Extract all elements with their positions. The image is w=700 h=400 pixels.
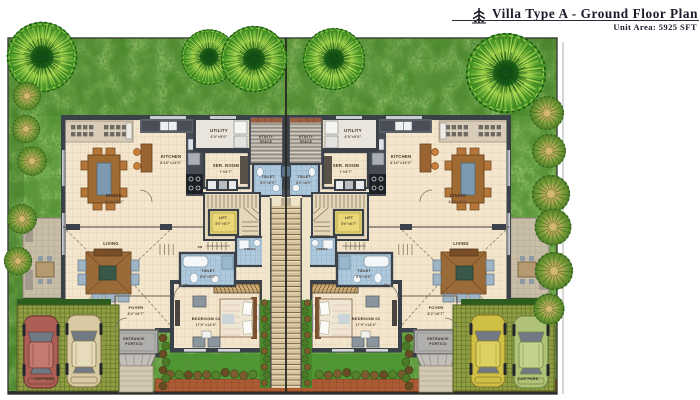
svg-text:16'0×16'7": 16'0×16'7" <box>451 248 471 252</box>
svg-text:8'6"×5'0": 8'6"×5'0" <box>356 275 372 279</box>
svg-text:6'0"×5'0": 6'0"×5'0" <box>210 135 227 139</box>
svg-text:CAR PARK: CAR PARK <box>33 377 54 381</box>
svg-text:LIVING: LIVING <box>453 241 469 246</box>
svg-text:UTILITY: UTILITY <box>299 135 314 139</box>
svg-text:5'0"×6'7": 5'0"×6'7" <box>341 222 357 226</box>
svg-text:8'10"×13'0": 8'10"×13'0" <box>160 161 182 165</box>
svg-text:DRESS: DRESS <box>316 247 327 251</box>
svg-text:FOYER: FOYER <box>129 305 144 310</box>
svg-text:SPACE: SPACE <box>260 140 273 144</box>
svg-text:PORTICO: PORTICO <box>125 342 143 346</box>
svg-text:UTILITY: UTILITY <box>210 128 228 133</box>
svg-text:FOYER: FOYER <box>429 305 444 310</box>
svg-text:DINING: DINING <box>450 193 467 198</box>
svg-text:BEDROOM 01: BEDROOM 01 <box>192 316 221 321</box>
svg-text:SER. ROOM: SER. ROOM <box>333 163 360 168</box>
svg-text:DN: DN <box>198 245 203 249</box>
svg-text:KITCHEN: KITCHEN <box>391 154 412 159</box>
svg-text:16'0×16'7": 16'0×16'7" <box>101 248 121 252</box>
svg-text:TOILET: TOILET <box>201 269 215 273</box>
svg-text:8'2"×6'7": 8'2"×6'7" <box>427 312 444 316</box>
svg-text:PORTICO: PORTICO <box>429 342 447 346</box>
svg-text:Unit Area: 5925 SFT: Unit Area: 5925 SFT <box>613 22 697 32</box>
svg-text:Villa Type A - Ground Floor Pl: Villa Type A - Ground Floor Plan <box>492 6 698 21</box>
svg-text:BEDROOM 01: BEDROOM 01 <box>352 316 381 321</box>
svg-text:17'0"×14'0": 17'0"×14'0" <box>355 323 377 327</box>
svg-text:14'0×15'6": 14'0×15'6" <box>448 200 468 204</box>
svg-text:TOILET: TOILET <box>357 269 371 273</box>
svg-text:KITCHEN: KITCHEN <box>161 154 182 159</box>
svg-text:UTILITY: UTILITY <box>344 128 362 133</box>
svg-text:17'0"×14'0": 17'0"×14'0" <box>195 323 217 327</box>
svg-text:6'0"×5'0": 6'0"×5'0" <box>344 135 361 139</box>
svg-text:8'0"×6'0": 8'0"×6'0" <box>296 181 312 185</box>
svg-text:8'6"×5'0": 8'6"×5'0" <box>200 275 216 279</box>
svg-text:14'0×15'6": 14'0×15'6" <box>104 200 124 204</box>
svg-text:TOILET: TOILET <box>261 175 275 179</box>
svg-text:8'0"×6'0": 8'0"×6'0" <box>260 181 276 185</box>
svg-text:SER. ROOM: SER. ROOM <box>213 163 240 168</box>
svg-text:CAR PARK: CAR PARK <box>517 377 538 381</box>
svg-text:ENTRANCE: ENTRANCE <box>123 337 145 341</box>
svg-text:5'0"×6'7": 5'0"×6'7" <box>215 222 231 226</box>
svg-text:8'2"×6'7": 8'2"×6'7" <box>127 312 144 316</box>
svg-text:7'×6'7": 7'×6'7" <box>220 170 233 174</box>
svg-text:LIFT: LIFT <box>219 216 228 220</box>
svg-text:ENTRANCE: ENTRANCE <box>427 337 449 341</box>
svg-text:DRESS: DRESS <box>244 247 255 251</box>
svg-text:SPACE: SPACE <box>300 140 313 144</box>
svg-text:TOILET: TOILET <box>297 175 311 179</box>
svg-text:8'10"×13'0": 8'10"×13'0" <box>390 161 412 165</box>
svg-text:LIVING: LIVING <box>103 241 119 246</box>
svg-text:LIFT: LIFT <box>345 216 354 220</box>
svg-text:7'×6'7": 7'×6'7" <box>340 170 353 174</box>
svg-text:UTILITY: UTILITY <box>259 135 274 139</box>
svg-text:DINING: DINING <box>106 193 123 198</box>
